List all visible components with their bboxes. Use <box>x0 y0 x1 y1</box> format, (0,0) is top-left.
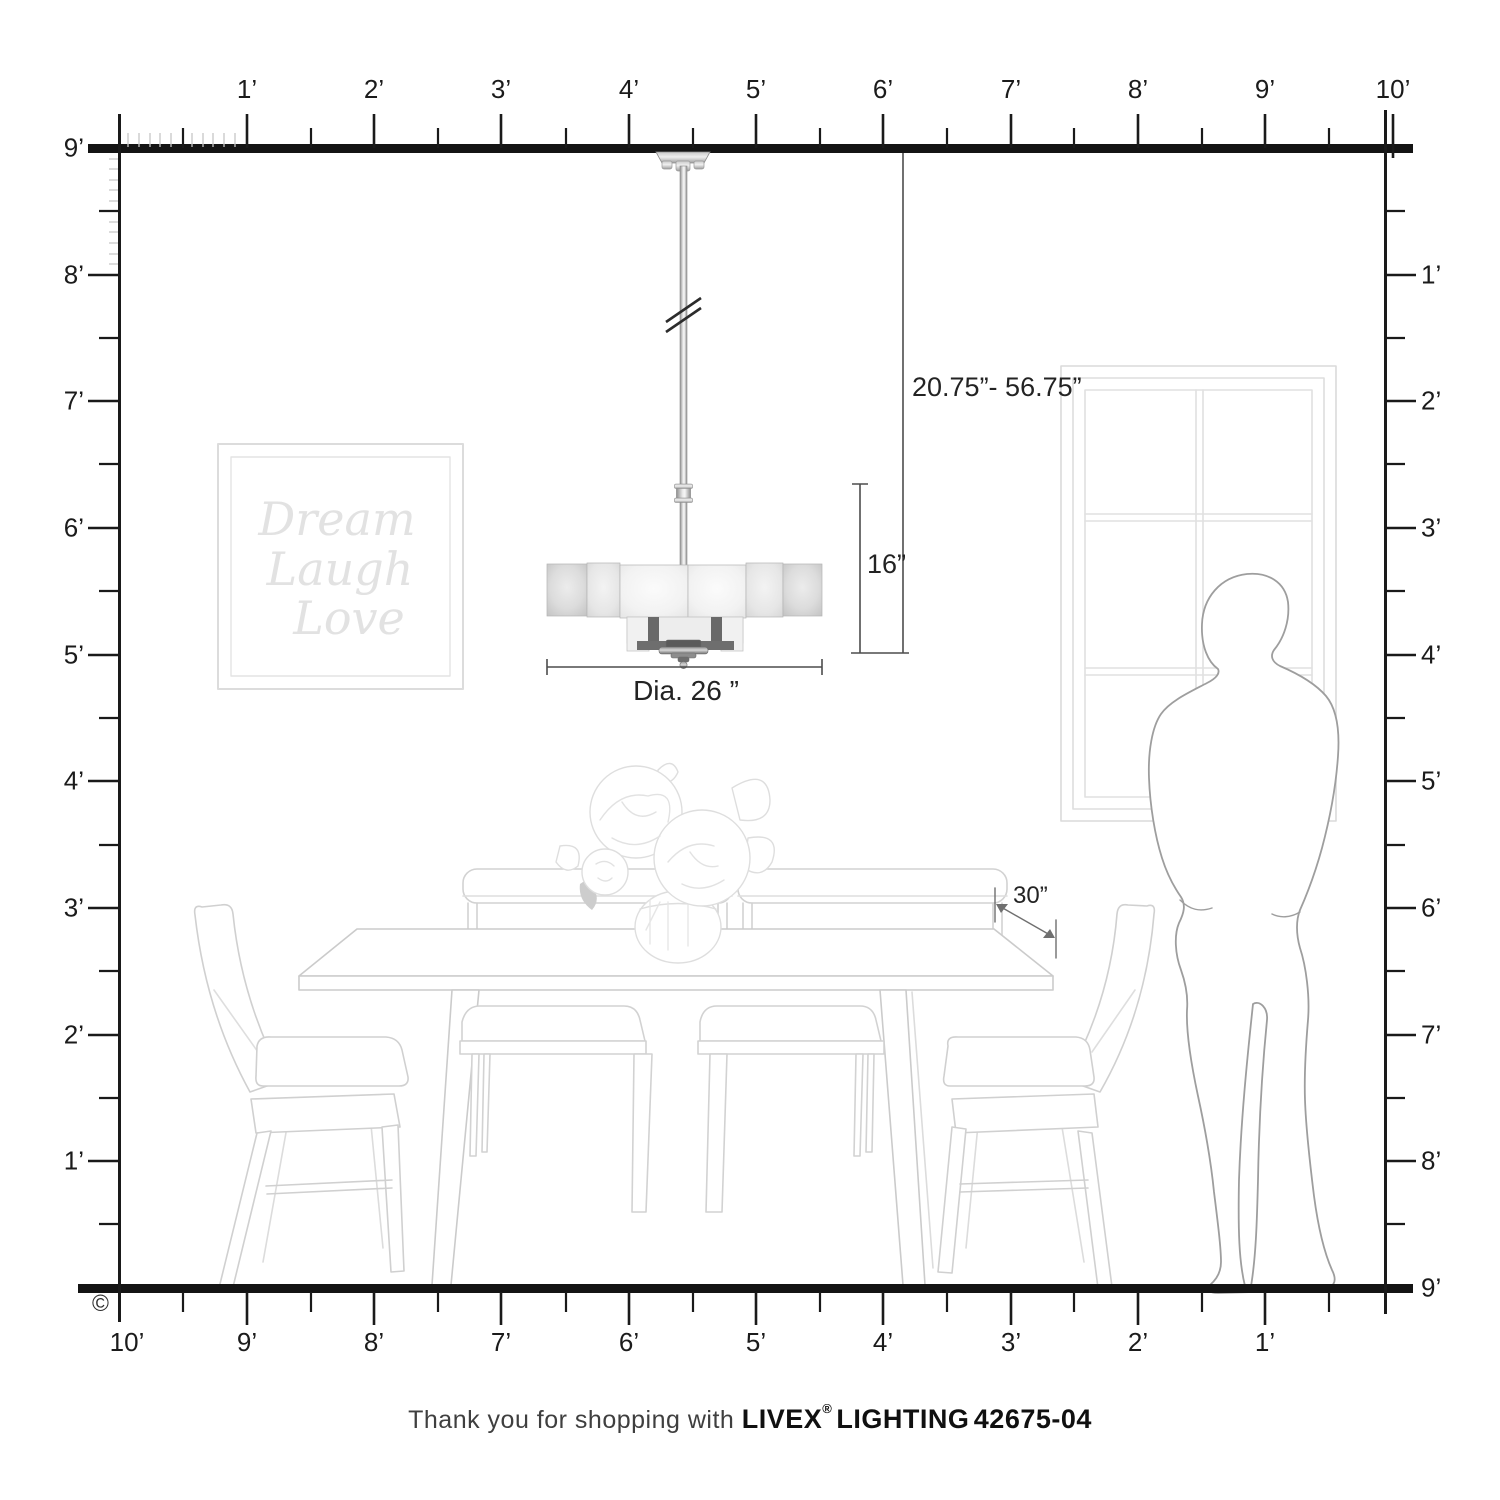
table-clearance-value: 30” <box>1013 882 1048 910</box>
ruler-label-bottom: 9’ <box>237 1327 257 1358</box>
footer-lighting: LIGHTING <box>836 1404 969 1434</box>
chandelier <box>547 152 909 675</box>
ruler-label-left: 6’ <box>30 513 84 544</box>
ruler-label-bottom: 5’ <box>746 1327 766 1358</box>
person-silhouette <box>1149 574 1339 1293</box>
ruler-label-top: 7’ <box>1001 74 1021 105</box>
ruler-label-left: 7’ <box>30 386 84 417</box>
footer-brand: LIVEX <box>742 1404 823 1434</box>
rod-coupler <box>675 484 693 503</box>
ruler-label-right: 5’ <box>1421 766 1441 797</box>
ruler-label-left: 8’ <box>30 260 84 291</box>
ruler-label-bottom: 10’ <box>110 1327 145 1358</box>
ruler-label-left: 1’ <box>30 1146 84 1177</box>
ceiling-line <box>88 144 1413 153</box>
ruler-label-right: 3’ <box>1421 513 1441 544</box>
ruler-label-top: 8’ <box>1128 74 1148 105</box>
left-ruler-ticks <box>88 159 119 1224</box>
ruler-label-top: 6’ <box>873 74 893 105</box>
ruler-label-bottom: 4’ <box>873 1327 893 1358</box>
ruler-label-left: 9’ <box>30 133 84 164</box>
ruler-label-left: 2’ <box>30 1020 84 1051</box>
ruler-label-right: 8’ <box>1421 1146 1441 1177</box>
ruler-label-bottom: 6’ <box>619 1327 639 1358</box>
footer-thankyou-text: Thank you for shopping with <box>408 1406 742 1434</box>
ruler-label-right: 4’ <box>1421 640 1441 671</box>
fixture-diameter-value: Dia. 26 ” <box>633 675 739 707</box>
ruler-label-left: 5’ <box>30 640 84 671</box>
ruler-label-top: 9’ <box>1255 74 1275 105</box>
footer-caption: Thank you for shopping with LIVEX® LIGHT… <box>0 1404 1500 1435</box>
ruler-label-top: 1’ <box>237 74 257 105</box>
back-chair-seats <box>460 1006 884 1212</box>
ruler-label-right: 9’ <box>1421 1273 1441 1304</box>
ruler-label-bottom: 2’ <box>1128 1327 1148 1358</box>
ruler-label-top: 10’ <box>1376 74 1411 105</box>
product-dimension-diagram: 1’ 2’ 3’ 4’ 5’ 6’ 7’ 8’ 9’ 10’ 9’ 8’ 7’ … <box>0 0 1500 1500</box>
ruler-label-top: 2’ <box>364 74 384 105</box>
floor-line <box>78 1284 1413 1293</box>
ruler-label-right: 2’ <box>1421 386 1441 417</box>
downrod <box>680 166 687 566</box>
ruler-label-bottom: 7’ <box>491 1327 511 1358</box>
ruler-label-top: 3’ <box>491 74 511 105</box>
registered-trademark-symbol: ® <box>822 1401 832 1416</box>
ruler-label-top: 4’ <box>619 74 639 105</box>
bottom-ruler-ticks <box>183 1292 1329 1325</box>
ruler-label-right: 6’ <box>1421 893 1441 924</box>
ruler-label-right: 1’ <box>1421 260 1441 291</box>
wall-art-word-laugh: Laugh <box>267 542 414 596</box>
ruler-label-right: 7’ <box>1421 1020 1441 1051</box>
drum-shade <box>547 563 822 618</box>
wall-art-word-dream: Dream <box>258 492 415 546</box>
hang-range-value: 20.75”- 56.75” <box>912 372 1082 403</box>
footer-sku: 42675-04 <box>974 1404 1092 1434</box>
ruler-label-bottom: 1’ <box>1255 1327 1275 1358</box>
center-hub <box>659 640 708 669</box>
dining-table <box>299 929 1053 1285</box>
height-16-line <box>852 484 868 653</box>
ruler-label-bottom: 8’ <box>364 1327 384 1358</box>
right-ruler-ticks <box>1385 211 1416 1224</box>
wall-art-word-love: Love <box>293 591 404 645</box>
ruler-label-left: 4’ <box>30 766 84 797</box>
copyright-mark: © <box>92 1290 109 1317</box>
fixture-height-value: 16” <box>867 549 906 580</box>
ruler-label-left: 3’ <box>30 893 84 924</box>
diagram-artwork <box>0 0 1500 1500</box>
ruler-label-bottom: 3’ <box>1001 1327 1021 1358</box>
ruler-label-top: 5’ <box>746 74 766 105</box>
